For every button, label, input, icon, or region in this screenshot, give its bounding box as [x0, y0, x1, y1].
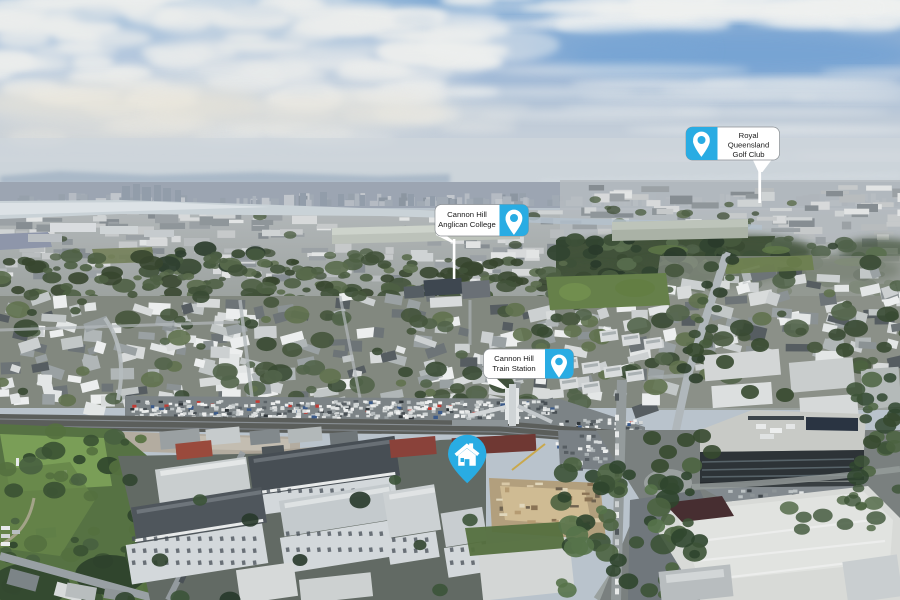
svg-text:Golf Club: Golf Club [732, 150, 764, 159]
svg-text:Train Station: Train Station [492, 364, 535, 373]
svg-text:Cannon Hill: Cannon Hill [447, 210, 487, 219]
svg-text:Royal: Royal [739, 131, 759, 140]
svg-text:Cannon Hill: Cannon Hill [494, 354, 534, 363]
svg-text:Queensland: Queensland [728, 141, 769, 150]
svg-text:Anglican College: Anglican College [438, 220, 496, 229]
